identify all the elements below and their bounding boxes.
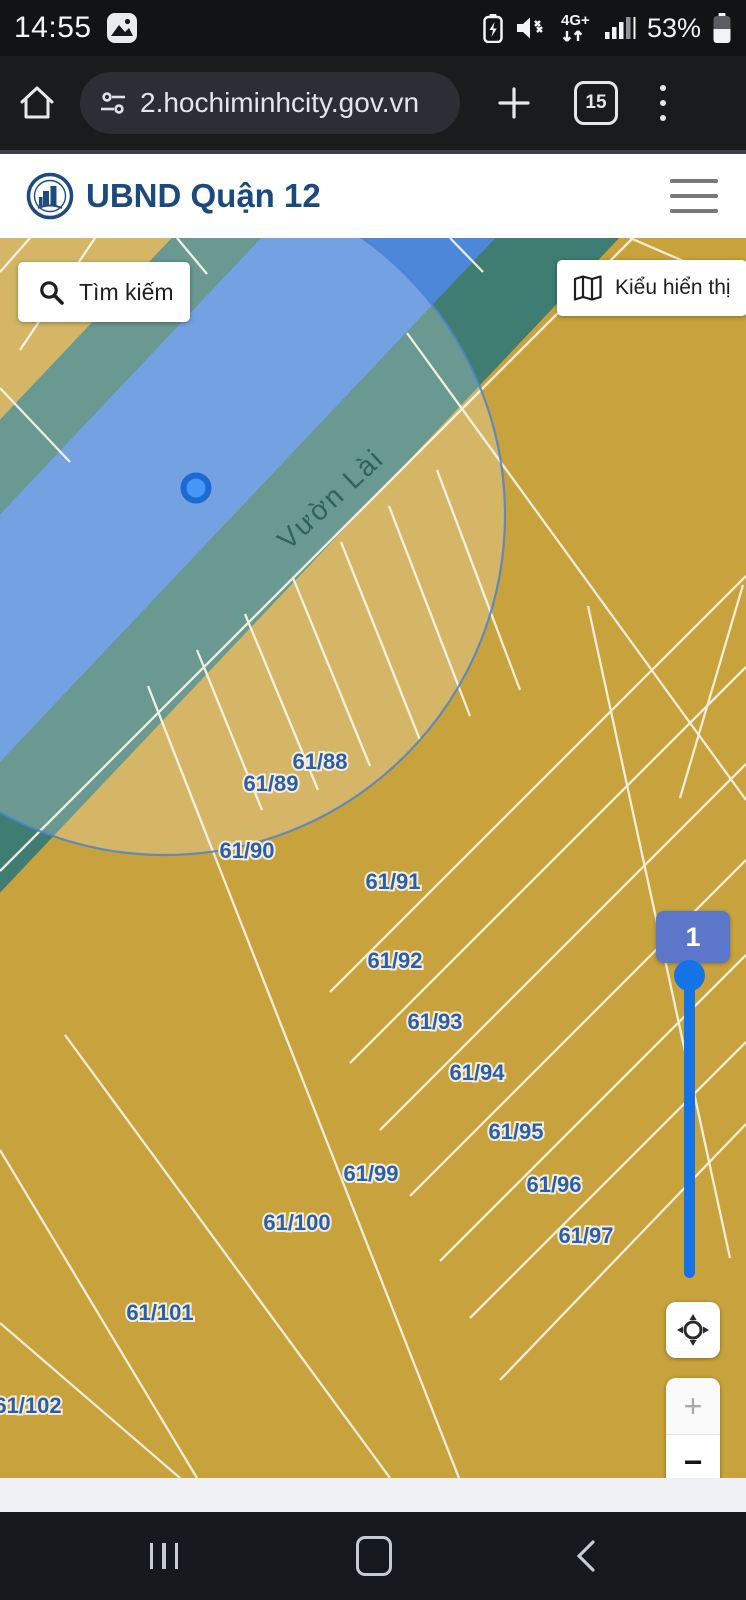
page-footer-strip	[0, 1478, 746, 1512]
home-icon[interactable]	[16, 82, 58, 124]
search-button-label: Tìm kiếm	[79, 279, 174, 306]
parcel-label: 61/94	[449, 1060, 505, 1085]
site-header: UBND Quận 12	[0, 154, 746, 238]
back-icon[interactable]	[546, 1516, 626, 1596]
svg-text:4G+: 4G+	[561, 12, 590, 29]
volume-muted-icon	[514, 13, 548, 43]
url-text: 2.hochiminhcity.gov.vn	[140, 87, 419, 119]
battery-percent-label: 53%	[647, 13, 701, 44]
parcel-label: 61/93	[407, 1009, 462, 1034]
android-nav-bar	[0, 1512, 746, 1600]
signal-strength-icon	[604, 13, 636, 43]
zoom-level-badge: 1	[656, 911, 730, 963]
parcel-label: 61/99	[343, 1161, 398, 1186]
browser-toolbar: 2.hochiminhcity.gov.vn 15	[0, 56, 746, 150]
search-icon	[38, 279, 65, 306]
clock: 14:55	[14, 11, 92, 45]
map-style-icon	[573, 275, 603, 301]
network-4g-icon: 4G+	[559, 11, 593, 45]
zoom-slider-knob[interactable]	[674, 960, 705, 991]
zoom-in-button[interactable]: +	[666, 1378, 720, 1435]
map-area: Vườn Lài 61/8861/8961/9061/9161/9261/936…	[0, 238, 746, 1478]
display-style-button[interactable]: Kiểu hiển thị	[557, 260, 746, 316]
parcel-label: 61/92	[367, 948, 422, 973]
home-pill-icon[interactable]	[334, 1516, 414, 1596]
zoom-slider-track[interactable]	[684, 976, 695, 1278]
parcel-label: 61/96	[526, 1172, 581, 1197]
parcel-label: 61/91	[365, 869, 420, 894]
parcel-label: 61/101	[126, 1300, 193, 1325]
status-bar: 14:55 4G+	[0, 0, 746, 56]
battery-icon	[712, 12, 732, 44]
site-settings-icon[interactable]	[98, 88, 128, 118]
address-bar[interactable]: 2.hochiminhcity.gov.vn	[80, 72, 460, 134]
display-style-button-label: Kiểu hiển thị	[615, 276, 731, 300]
tab-count: 15	[585, 92, 606, 114]
parcel-label: 61/100	[263, 1210, 330, 1235]
recents-icon[interactable]	[124, 1516, 204, 1596]
overflow-menu-icon[interactable]	[660, 85, 666, 121]
parcel-label: 61/89	[243, 771, 298, 796]
hamburger-menu-icon[interactable]	[668, 173, 720, 219]
search-button[interactable]: Tìm kiếm	[18, 262, 190, 322]
crosshair-icon	[676, 1313, 710, 1347]
map-canvas[interactable]: Vườn Lài 61/8861/8961/9061/9161/9261/936…	[0, 238, 746, 1478]
zoom-control: + −	[666, 1378, 720, 1490]
parcel-label: 61/102	[0, 1393, 62, 1418]
parcel-label: 61/97	[558, 1223, 613, 1248]
parcel-label: 61/90	[219, 838, 274, 863]
battery-saver-icon	[483, 13, 503, 43]
tab-switcher-button[interactable]: 15	[574, 81, 618, 125]
zoom-level-value: 1	[685, 922, 700, 953]
page-title: UBND Quận 12	[86, 177, 321, 215]
parcel-label: 61/88	[292, 749, 347, 774]
ubnd-emblem-logo	[26, 172, 74, 220]
my-location-button[interactable]	[666, 1302, 720, 1358]
parcel-label: 61/95	[488, 1119, 543, 1144]
phone-screen: 14:55 4G+	[0, 0, 746, 1600]
gallery-notification-icon	[106, 12, 138, 44]
new-tab-icon[interactable]	[494, 83, 534, 123]
current-location-dot	[184, 476, 209, 501]
